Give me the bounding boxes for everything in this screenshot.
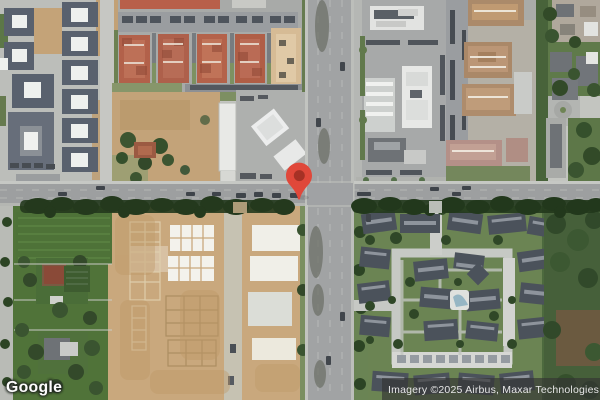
svg-text:Imagery ©2025 Airbus, Maxar Te: Imagery ©2025 Airbus, Maxar Technologies <box>388 384 599 396</box>
svg-text:Google: Google <box>6 379 62 396</box>
